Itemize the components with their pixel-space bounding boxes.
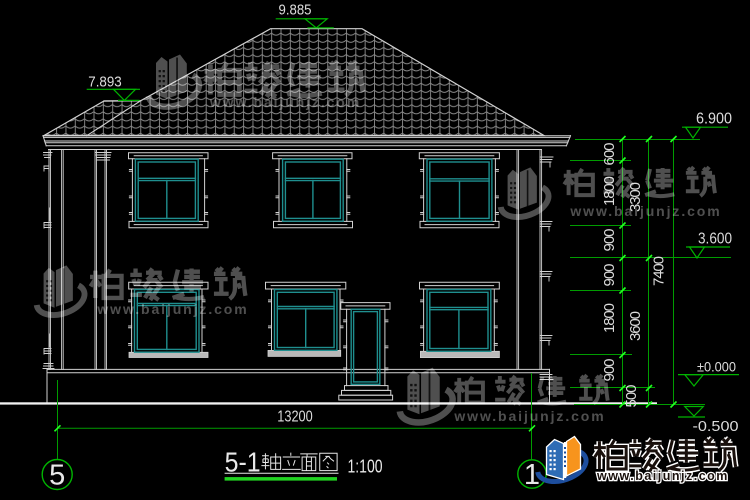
svg-text:6.900: 6.900 xyxy=(696,111,732,128)
svg-text:7400: 7400 xyxy=(651,256,668,286)
svg-text:900: 900 xyxy=(601,264,618,287)
svg-text:3.600: 3.600 xyxy=(698,231,732,248)
svg-text:www.baijunjz.com: www.baijunjz.com xyxy=(596,469,729,483)
svg-text:13200: 13200 xyxy=(277,409,313,426)
svg-text:-0.500: -0.500 xyxy=(693,419,739,435)
svg-text:5: 5 xyxy=(49,460,65,492)
svg-text:www.baijunjz.com: www.baijunjz.com xyxy=(96,301,248,317)
svg-text:±0.000: ±0.000 xyxy=(697,359,736,375)
svg-text:3600: 3600 xyxy=(627,311,644,341)
svg-text:600: 600 xyxy=(601,143,618,166)
svg-text:1:100: 1:100 xyxy=(348,457,383,477)
svg-text:500: 500 xyxy=(623,385,640,408)
svg-text:900: 900 xyxy=(601,229,618,252)
svg-text:www.baijunjz.com: www.baijunjz.com xyxy=(209,94,361,110)
svg-text:9.885: 9.885 xyxy=(279,2,312,19)
svg-text:1800: 1800 xyxy=(601,303,618,333)
svg-text:900: 900 xyxy=(601,359,618,382)
svg-text:7.893: 7.893 xyxy=(88,74,122,91)
svg-text:www.baijunjz.com: www.baijunjz.com xyxy=(569,203,721,219)
svg-text:www.baijunjz.com: www.baijunjz.com xyxy=(453,408,605,424)
